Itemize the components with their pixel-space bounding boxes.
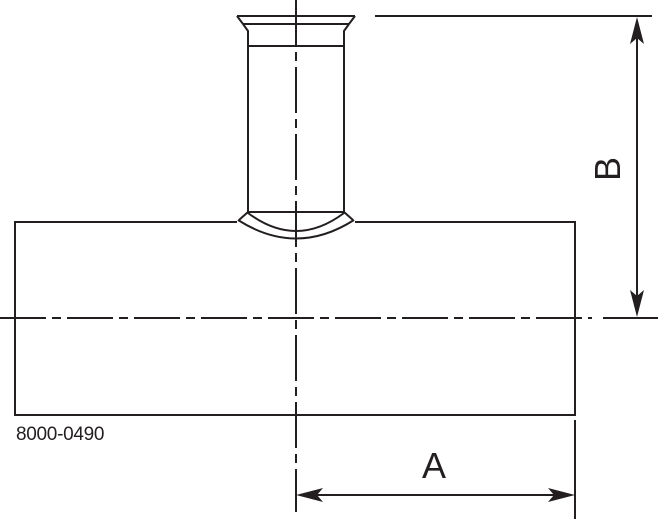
drawing-sheet: B A 8000-0490 (0, 0, 660, 519)
technical-drawing: B A 8000-0490 (0, 0, 660, 519)
dimension-b-label: B (587, 157, 628, 181)
dimension-a: A (296, 420, 575, 519)
part-number: 8000-0490 (16, 424, 104, 445)
dimension-b: B (375, 16, 658, 318)
dimension-a-label: A (422, 445, 446, 486)
